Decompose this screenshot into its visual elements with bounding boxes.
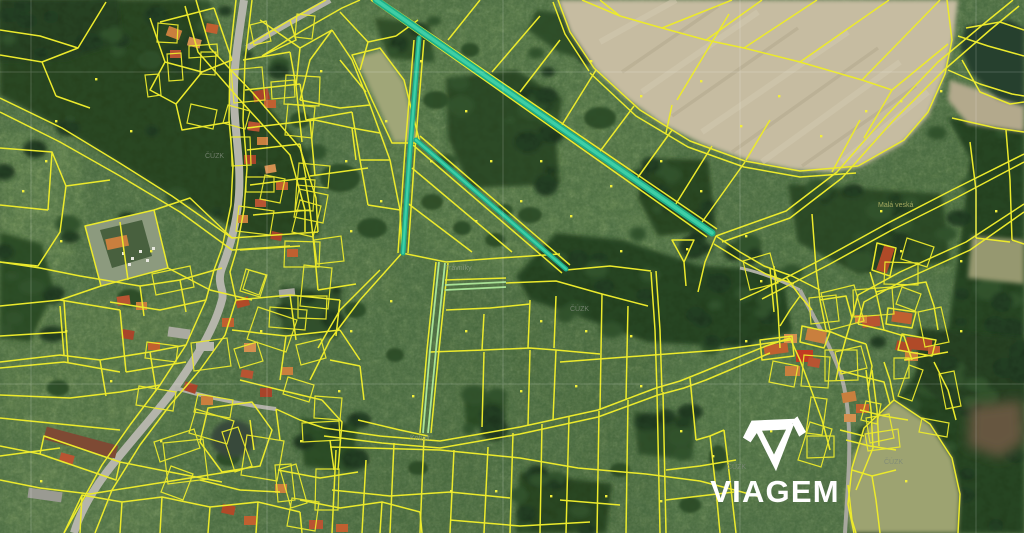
svg-text:ČÚZK: ČÚZK — [727, 462, 746, 471]
svg-text:ČÚZK: ČÚZK — [205, 151, 224, 160]
svg-text:Trávníky: Trávníky — [445, 265, 472, 272]
svg-text:Kobolt: Kobolt — [410, 435, 430, 442]
svg-text:ČÚZK: ČÚZK — [570, 304, 589, 313]
svg-text:ČÚZK: ČÚZK — [884, 457, 903, 466]
svg-text:VIAGEM: VIAGEM — [710, 474, 840, 509]
svg-text:Malá veská: Malá veská — [878, 202, 914, 209]
